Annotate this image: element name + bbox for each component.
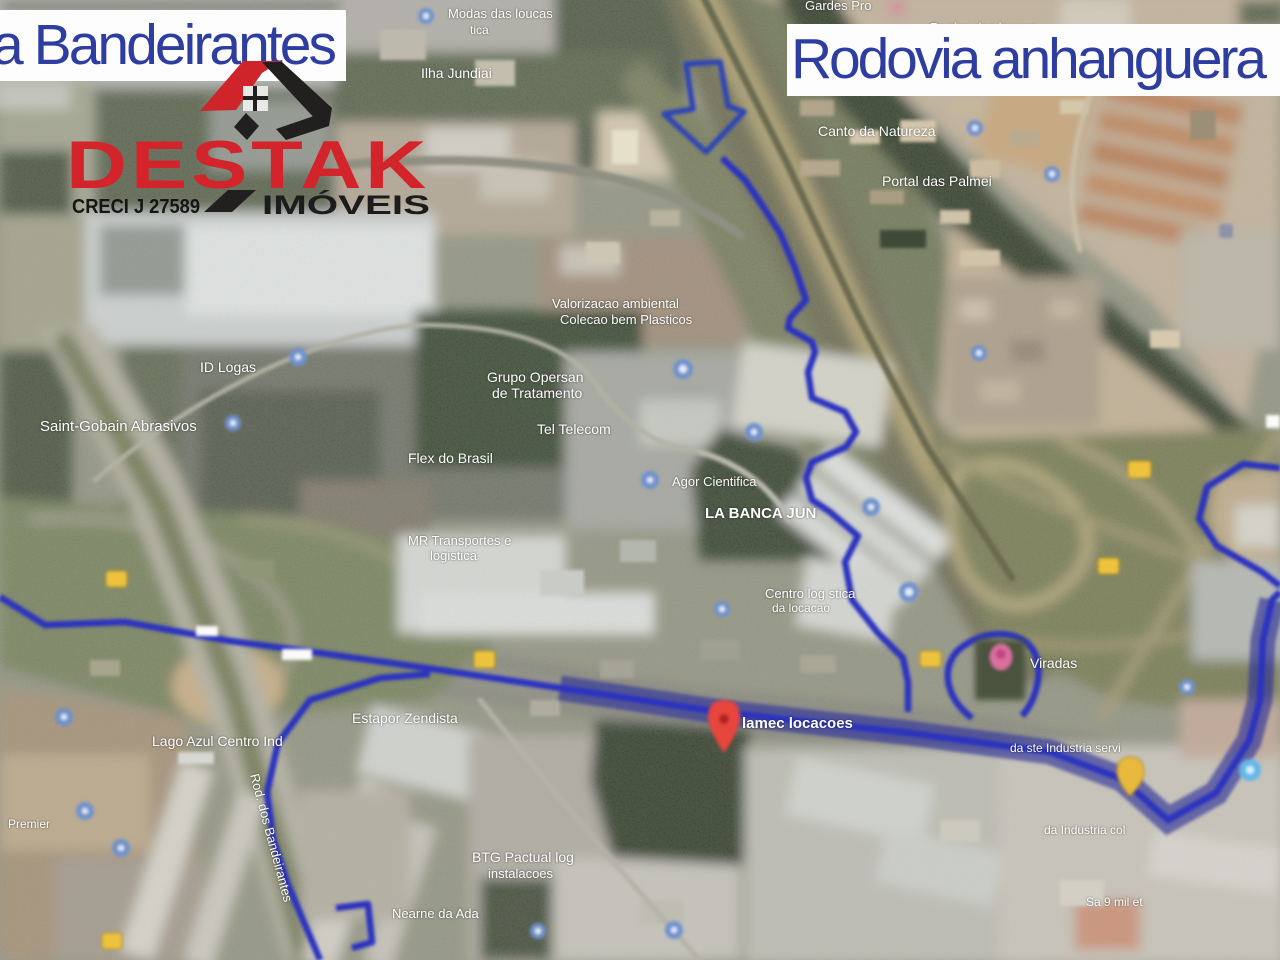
svg-text:da locacao: da locacao — [772, 601, 830, 615]
svg-text:Flex do Brasil: Flex do Brasil — [408, 450, 493, 466]
svg-text:LA BANCA JUN: LA BANCA JUN — [705, 505, 816, 522]
svg-text:IMÓVEIS: IMÓVEIS — [262, 189, 430, 220]
svg-text:da ste Industria servi: da ste Industria servi — [1010, 741, 1121, 755]
svg-text:Viradas: Viradas — [1030, 655, 1077, 671]
svg-text:logistica: logistica — [430, 548, 478, 563]
svg-text:CRECI J 27589: CRECI J 27589 — [72, 196, 200, 218]
svg-text:da Industria col: da Industria col — [1044, 823, 1125, 837]
svg-text:Rodovia anhanguera: Rodovia anhanguera — [791, 27, 1267, 91]
svg-text:MR Transportes e: MR Transportes e — [408, 533, 511, 548]
svg-text:Modas das loucas: Modas das loucas — [448, 6, 553, 21]
svg-text:Estapor Zendista: Estapor Zendista — [352, 710, 458, 726]
svg-text:Premier: Premier — [8, 817, 50, 831]
svg-text:Gardes Pro: Gardes Pro — [805, 0, 871, 13]
svg-text:lamec locacoes: lamec locacoes — [742, 715, 853, 732]
svg-text:Ilha Jundiai: Ilha Jundiai — [421, 65, 492, 81]
svg-text:Saint-Gobain Abrasivos: Saint-Gobain Abrasivos — [40, 418, 197, 435]
svg-text:Agor Cientifica: Agor Cientifica — [672, 474, 757, 489]
svg-text:Grupo Opersan: Grupo Opersan — [487, 369, 584, 385]
svg-text:instalacoes: instalacoes — [488, 866, 554, 881]
svg-text:tica: tica — [470, 23, 489, 37]
svg-text:BTG Pactual log: BTG Pactual log — [472, 849, 574, 865]
svg-text:Canto da Natureza: Canto da Natureza — [818, 123, 936, 139]
svg-text:Portal das Palmei: Portal das Palmei — [882, 173, 992, 189]
svg-text:Centro log stica: Centro log stica — [765, 586, 856, 601]
svg-text:ID Logas: ID Logas — [200, 359, 256, 375]
svg-text:Sa 9 mil et: Sa 9 mil et — [1086, 895, 1143, 909]
svg-text:Lago Azul Centro Ind: Lago Azul Centro Ind — [152, 733, 283, 749]
svg-text:Valorizacao ambiental: Valorizacao ambiental — [552, 296, 679, 311]
svg-text:Colecao bem Plasticos: Colecao bem Plasticos — [560, 312, 693, 327]
svg-text:Nearne da Ada: Nearne da Ada — [392, 906, 480, 921]
svg-text:Tel Telecom: Tel Telecom — [537, 421, 611, 437]
svg-text:de Tratamento: de Tratamento — [492, 385, 582, 401]
